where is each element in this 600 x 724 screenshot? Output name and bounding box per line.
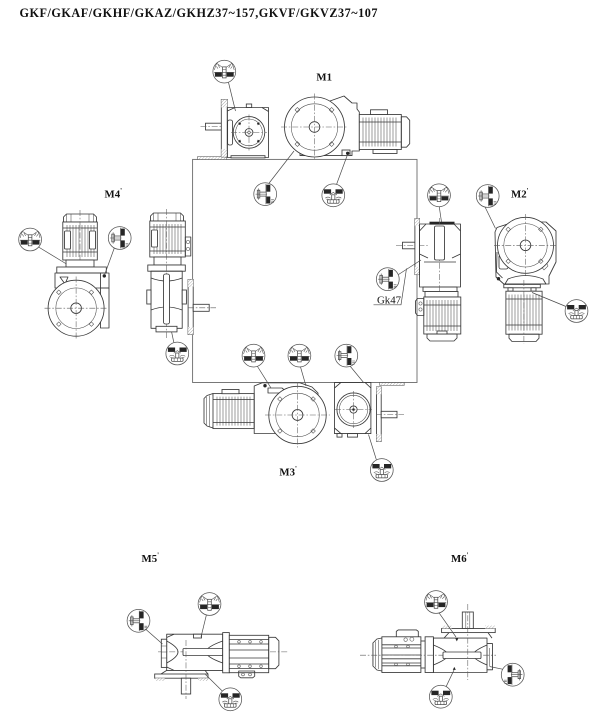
svg-text:M5': M5' [142, 552, 160, 566]
svg-text:M3': M3' [279, 465, 297, 479]
svg-text:M4': M4' [105, 187, 123, 201]
svg-text:GKF/GKAF/GKHF/GKAZ/GKHZ37~157,: GKF/GKAF/GKHF/GKAZ/GKHZ37~157,GKVF/GKVZ3… [20, 6, 378, 20]
svg-text:M6': M6' [451, 552, 469, 566]
svg-text:M1: M1 [316, 72, 332, 84]
svg-text:M2': M2' [511, 187, 529, 201]
